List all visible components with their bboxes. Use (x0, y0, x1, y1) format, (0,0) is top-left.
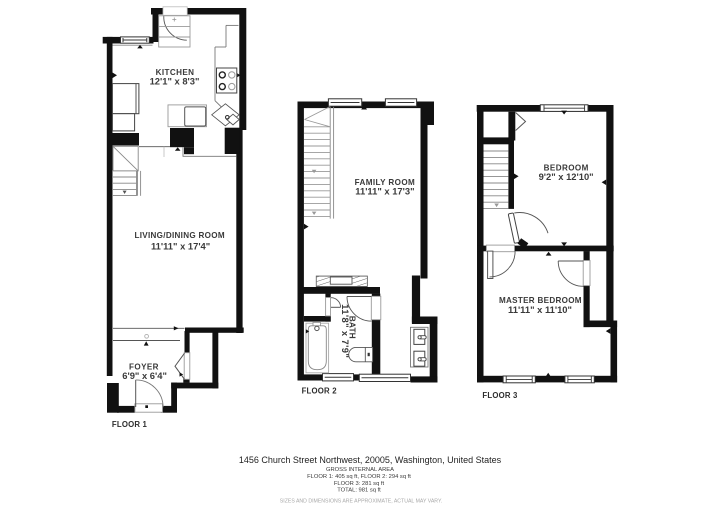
svg-text:FLOOR 2: FLOOR 2 (302, 387, 338, 396)
svg-text:6'9" x 6'4": 6'9" x 6'4" (122, 370, 167, 381)
svg-text:11'11" x 17'3": 11'11" x 17'3" (355, 185, 414, 196)
svg-text:FLOOR 3: 281 sq ft: FLOOR 3: 281 sq ft (334, 481, 385, 487)
svg-text:SIZES AND DIMENSIONS ARE APPRO: SIZES AND DIMENSIONS ARE APPROXIMATE, AC… (280, 498, 442, 504)
svg-text:GROSS INTERNAL AREA: GROSS INTERNAL AREA (326, 467, 394, 473)
svg-text:1456 Church Street Northwest,: 1456 Church Street Northwest, 20005, Was… (239, 455, 502, 465)
svg-text:12'1" x 8'3": 12'1" x 8'3" (150, 76, 200, 87)
svg-text:LIVING/DINING ROOM: LIVING/DINING ROOM (135, 231, 225, 240)
svg-text:9'2" x 12'10": 9'2" x 12'10" (539, 171, 594, 182)
svg-text:FLOOR 1: 405 sq ft, FLOOR 2: 2: FLOOR 1: 405 sq ft, FLOOR 2: 294 sq ft (307, 474, 411, 480)
svg-text:11'11" x 17'4": 11'11" x 17'4" (151, 241, 210, 252)
svg-text:11'8" x 7'9": 11'8" x 7'9" (340, 304, 351, 358)
svg-text:FLOOR 1: FLOOR 1 (112, 420, 148, 429)
svg-text:TOTAL: 981 sq ft: TOTAL: 981 sq ft (337, 488, 381, 494)
svg-text:11'11" x 11'10": 11'11" x 11'10" (508, 304, 572, 315)
svg-text:FLOOR 3: FLOOR 3 (482, 391, 518, 400)
